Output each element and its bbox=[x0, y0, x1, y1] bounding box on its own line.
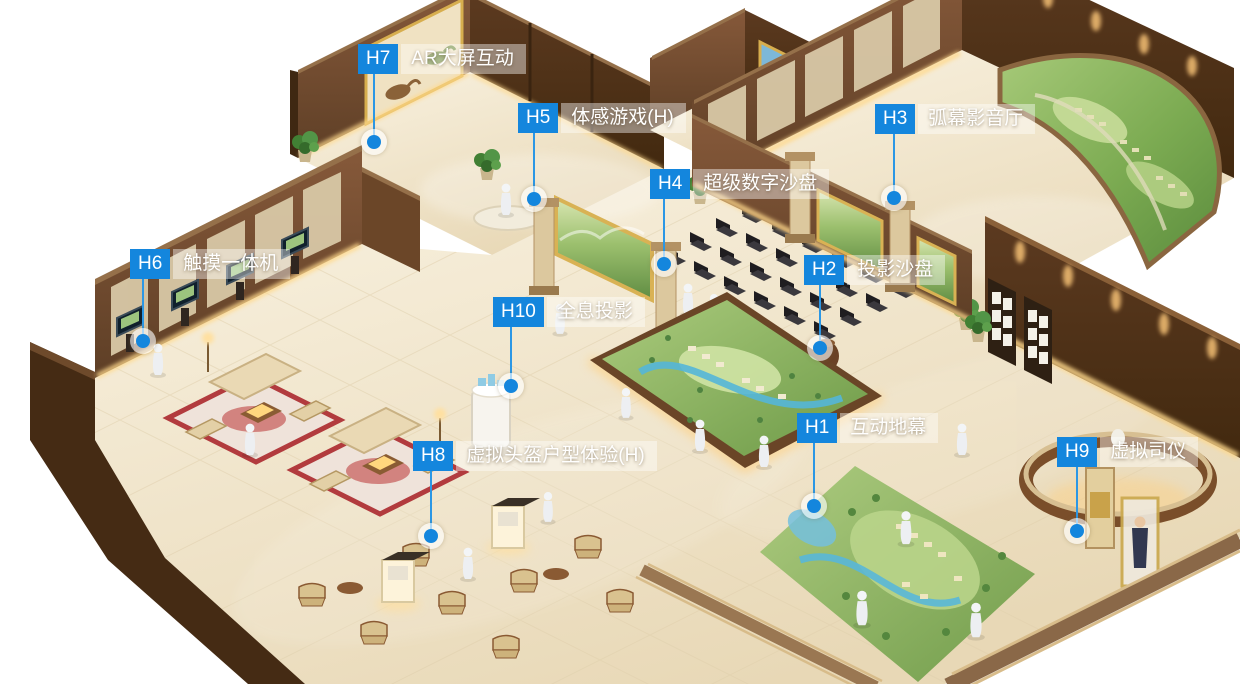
hotspot-marker-h7[interactable] bbox=[361, 129, 387, 155]
hotspot-label-h1[interactable]: 互动地幕 bbox=[840, 413, 938, 443]
hotspot-layer: H7AR大屏互动H5体感游戏(H)H4超级数字沙盘H3弧幕影音厅H6触摸一体机H… bbox=[0, 0, 1240, 684]
hotspot-label-h4[interactable]: 超级数字沙盘 bbox=[693, 169, 829, 199]
hotspot-marker-h6[interactable] bbox=[130, 328, 156, 354]
hotspot-badge-h4[interactable]: H4 bbox=[650, 169, 690, 199]
hotspot-h7: H7AR大屏互动 bbox=[358, 44, 526, 74]
hotspot-badge-h2[interactable]: H2 bbox=[804, 255, 844, 285]
hotspot-marker-h9[interactable] bbox=[1064, 518, 1090, 544]
hotspot-label-h3[interactable]: 弧幕影音厅 bbox=[918, 104, 1035, 134]
exhibition-hall-map: H7AR大屏互动H5体感游戏(H)H4超级数字沙盘H3弧幕影音厅H6触摸一体机H… bbox=[0, 0, 1240, 684]
hotspot-label-h6[interactable]: 触摸一体机 bbox=[173, 249, 290, 279]
hotspot-badge-h8[interactable]: H8 bbox=[413, 441, 453, 471]
hotspot-h9: H9虚拟司仪 bbox=[1057, 437, 1198, 467]
hotspot-marker-h4[interactable] bbox=[651, 251, 677, 277]
hotspot-badge-h10[interactable]: H10 bbox=[493, 297, 544, 327]
hotspot-label-h7[interactable]: AR大屏互动 bbox=[401, 44, 525, 74]
hotspot-label-h5[interactable]: 体感游戏(H) bbox=[561, 103, 685, 133]
hotspot-marker-h8[interactable] bbox=[418, 523, 444, 549]
hotspot-marker-h5[interactable] bbox=[521, 186, 547, 212]
hotspot-marker-h10[interactable] bbox=[498, 373, 524, 399]
hotspot-label-h9[interactable]: 虚拟司仪 bbox=[1100, 437, 1198, 467]
hotspot-badge-h9[interactable]: H9 bbox=[1057, 437, 1097, 467]
hotspot-marker-h2[interactable] bbox=[807, 335, 833, 361]
hotspot-h1: H1互动地幕 bbox=[797, 413, 938, 443]
hotspot-label-h10[interactable]: 全息投影 bbox=[547, 297, 645, 327]
hotspot-badge-h5[interactable]: H5 bbox=[518, 103, 558, 133]
hotspot-badge-h3[interactable]: H3 bbox=[875, 104, 915, 134]
hotspot-badge-h1[interactable]: H1 bbox=[797, 413, 837, 443]
hotspot-marker-h1[interactable] bbox=[801, 493, 827, 519]
hotspot-badge-h6[interactable]: H6 bbox=[130, 249, 170, 279]
hotspot-h4: H4超级数字沙盘 bbox=[650, 169, 829, 199]
hotspot-h2: H2投影沙盘 bbox=[804, 255, 945, 285]
hotspot-marker-h3[interactable] bbox=[881, 185, 907, 211]
hotspot-label-h8[interactable]: 虚拟头盔户型体验(H) bbox=[456, 441, 656, 471]
hotspot-label-h2[interactable]: 投影沙盘 bbox=[847, 255, 945, 285]
hotspot-h5: H5体感游戏(H) bbox=[518, 103, 686, 133]
hotspot-badge-h7[interactable]: H7 bbox=[358, 44, 398, 74]
hotspot-h8: H8虚拟头盔户型体验(H) bbox=[413, 441, 657, 471]
hotspot-h10: H10全息投影 bbox=[493, 297, 645, 327]
hotspot-h3: H3弧幕影音厅 bbox=[875, 104, 1035, 134]
hotspot-h6: H6触摸一体机 bbox=[130, 249, 290, 279]
